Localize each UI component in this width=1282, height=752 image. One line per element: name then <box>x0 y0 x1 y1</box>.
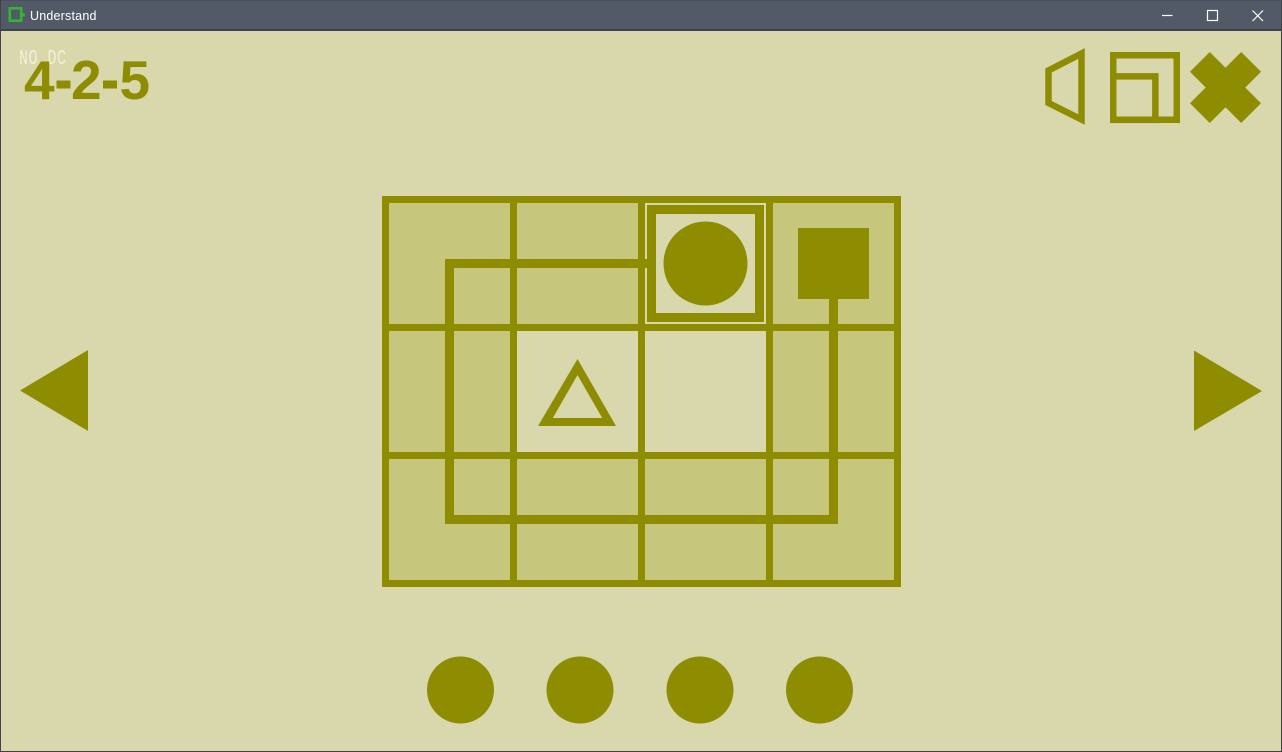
svg-text:5: 5 <box>120 49 151 111</box>
svg-text:4: 4 <box>24 49 55 111</box>
svg-text:2: 2 <box>71 49 102 111</box>
